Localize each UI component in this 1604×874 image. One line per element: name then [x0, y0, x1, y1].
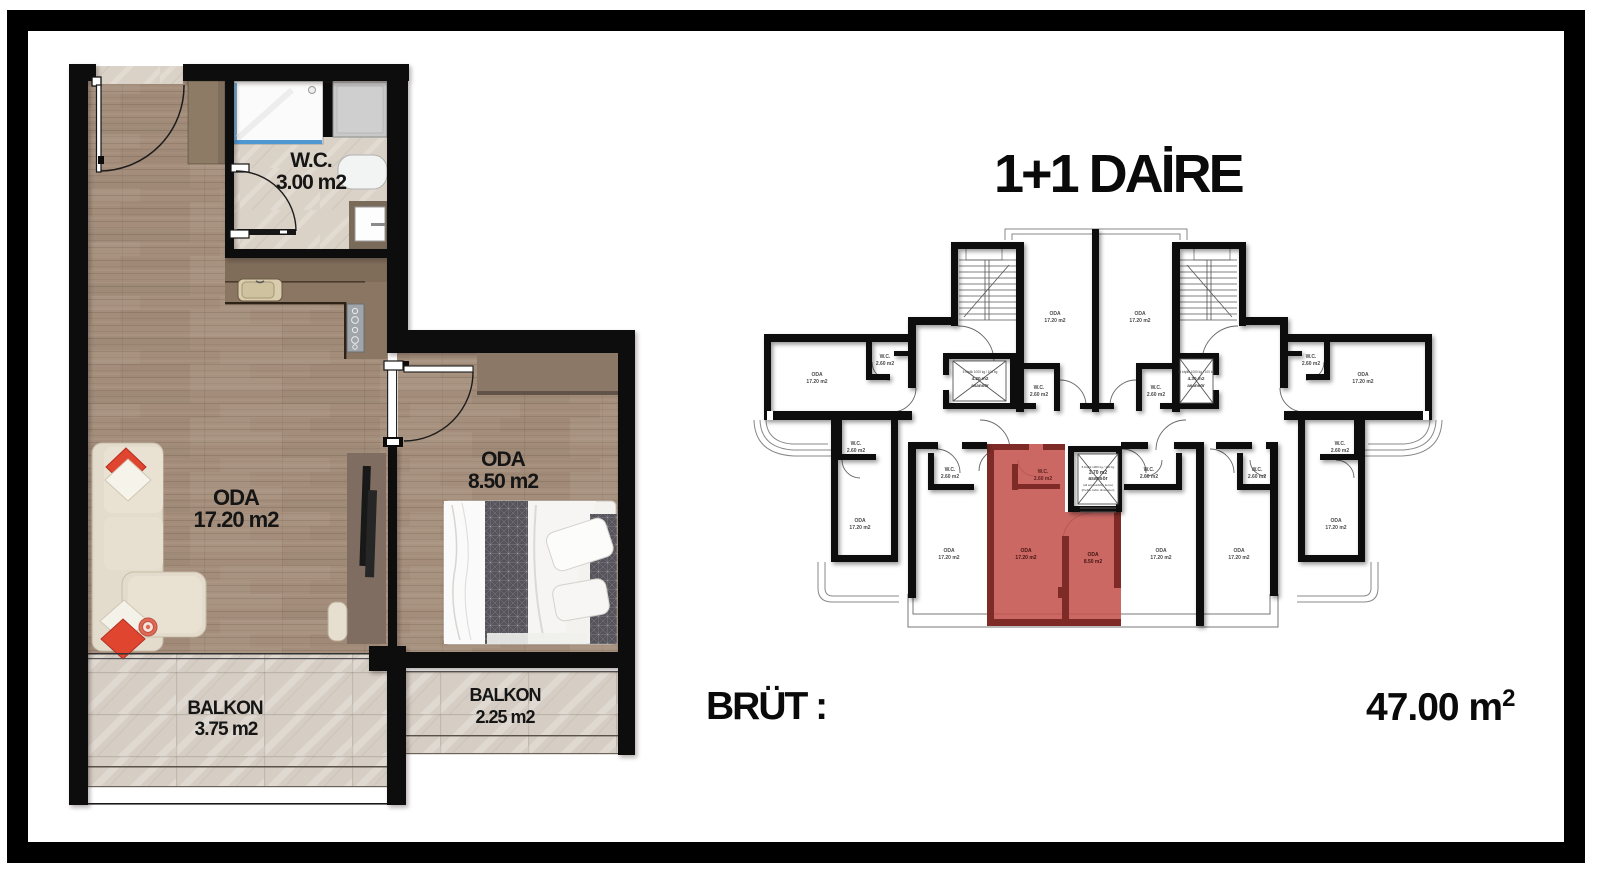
svg-text:2.60 m2: 2.60 m2	[1030, 392, 1049, 398]
svg-text:ODA: ODA	[1020, 548, 1032, 554]
svg-text:4.20 m2: 4.20 m2	[972, 376, 989, 381]
svg-text:ODA: ODA	[1155, 548, 1167, 554]
svg-text:asansör: asansör	[1187, 383, 1205, 388]
svg-text:17.20 m2: 17.20 m2	[194, 507, 280, 532]
svg-text:17.20 m2: 17.20 m2	[849, 525, 870, 531]
svg-text:W.C.: W.C.	[1252, 467, 1263, 473]
svg-text:W.C.: W.C.	[1335, 441, 1346, 447]
svg-text:17.20 m2: 17.20 m2	[1015, 555, 1036, 561]
svg-text:17.20 m2: 17.20 m2	[1044, 318, 1065, 324]
svg-text:17.20 m2: 17.20 m2	[1352, 379, 1373, 385]
svg-text:W.C.: W.C.	[1034, 385, 1045, 391]
svg-text:W.C.: W.C.	[945, 467, 956, 473]
svg-text:W.C.: W.C.	[290, 149, 332, 172]
svg-text:W.C.: W.C.	[880, 354, 891, 360]
svg-text:2.60 m2: 2.60 m2	[1034, 476, 1053, 482]
svg-text:ODA: ODA	[1330, 518, 1342, 524]
svg-text:asansör: asansör	[971, 383, 989, 388]
svg-text:17.20 m2: 17.20 m2	[1325, 525, 1346, 531]
svg-text:ODA: ODA	[481, 448, 526, 471]
svg-text:W.C.: W.C.	[1144, 467, 1155, 473]
svg-text:BALKON: BALKON	[187, 698, 263, 719]
svg-text:17.20 m2: 17.20 m2	[938, 555, 959, 561]
svg-text:ODA: ODA	[854, 518, 866, 524]
svg-text:W.C.: W.C.	[851, 441, 862, 447]
svg-text:2.60 m2: 2.60 m2	[1248, 474, 1267, 480]
svg-text:8 kişilik 1000 kg / 100 kg: 8 kişilik 1000 kg / 100 kg	[1082, 465, 1115, 469]
svg-text:(firefire cabin dimension): (firefire cabin dimension)	[1082, 488, 1115, 492]
svg-text:8.50 m2: 8.50 m2	[1084, 559, 1103, 565]
svg-text:2.60 m2: 2.60 m2	[1302, 361, 1321, 367]
svg-text:(all accessibility items): (all accessibility items)	[1083, 483, 1113, 487]
svg-text:8.50 m2: 8.50 m2	[468, 470, 538, 493]
svg-text:2.60 m2: 2.60 m2	[1147, 392, 1166, 398]
svg-text:W.C.: W.C.	[1151, 385, 1162, 391]
svg-text:W.C.: W.C.	[1038, 469, 1049, 475]
svg-text:16 kişilik 1000 kg / 100 kg: 16 kişilik 1000 kg / 100 kg	[1178, 370, 1215, 374]
svg-text:2.25 m2: 2.25 m2	[475, 707, 535, 727]
svg-text:ODA: ODA	[1134, 311, 1146, 317]
svg-text:2.60 m2: 2.60 m2	[847, 448, 866, 454]
svg-text:2.60 m2: 2.60 m2	[1331, 448, 1350, 454]
svg-text:BALKON: BALKON	[470, 685, 541, 705]
svg-text:ODA: ODA	[1233, 548, 1245, 554]
svg-text:W.C.: W.C.	[1306, 354, 1317, 360]
svg-text:ODA: ODA	[811, 372, 823, 378]
svg-text:17.20 m2: 17.20 m2	[1150, 555, 1171, 561]
svg-text:ODA: ODA	[943, 548, 955, 554]
svg-text:2.60 m2: 2.60 m2	[1140, 474, 1159, 480]
svg-text:3.75 m2: 3.75 m2	[195, 719, 258, 740]
svg-text:17.20 m2: 17.20 m2	[1228, 555, 1249, 561]
svg-text:4.30 m2: 4.30 m2	[1188, 376, 1205, 381]
svg-text:ODA: ODA	[1357, 372, 1369, 378]
svg-text:ODA: ODA	[1049, 311, 1061, 317]
svg-text:17.20 m2: 17.20 m2	[806, 379, 827, 385]
svg-text:5 kişilik 1000 kg / 100 kg: 5 kişilik 1000 kg / 100 kg	[963, 370, 998, 374]
svg-text:2.60 m2: 2.60 m2	[941, 474, 960, 480]
svg-text:3.00 m2: 3.00 m2	[276, 171, 346, 194]
svg-text:2.60 m2: 2.60 m2	[876, 361, 895, 367]
svg-text:17.20 m2: 17.20 m2	[1129, 318, 1150, 324]
svg-text:asansör: asansör	[1088, 476, 1107, 482]
svg-text:ODA: ODA	[1087, 552, 1099, 558]
